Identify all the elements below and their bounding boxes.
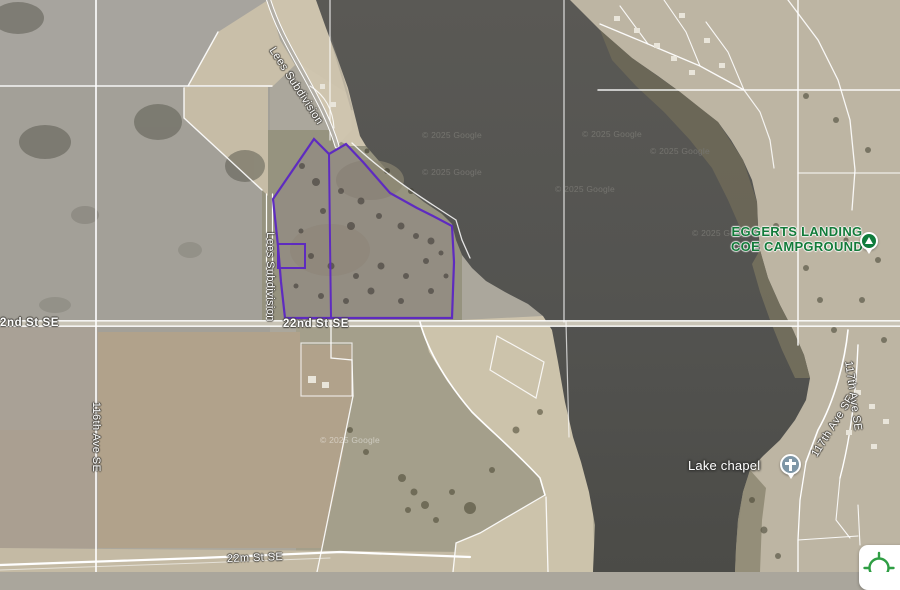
location-crosshair-icon[interactable] — [859, 545, 900, 572]
satellite-map[interactable] — [0, 0, 900, 572]
campground-label-line2: COE CAMPGROUND — [712, 239, 882, 254]
chapel-pin[interactable] — [780, 454, 801, 475]
poi-label-lake-chapel[interactable]: Lake chapel — [688, 458, 760, 473]
map-control-panel[interactable] — [859, 545, 900, 590]
church-cross-icon — [780, 454, 801, 475]
campground-label-line1: EGGERTS LANDING — [712, 224, 882, 239]
poi-label-eggerts-landing-campground[interactable]: EGGERTS LANDING COE CAMPGROUND — [712, 224, 882, 254]
map-viewport: { "attribution": "© 2025 Google", "road_… — [0, 0, 900, 572]
campground-pin[interactable] — [860, 232, 878, 250]
